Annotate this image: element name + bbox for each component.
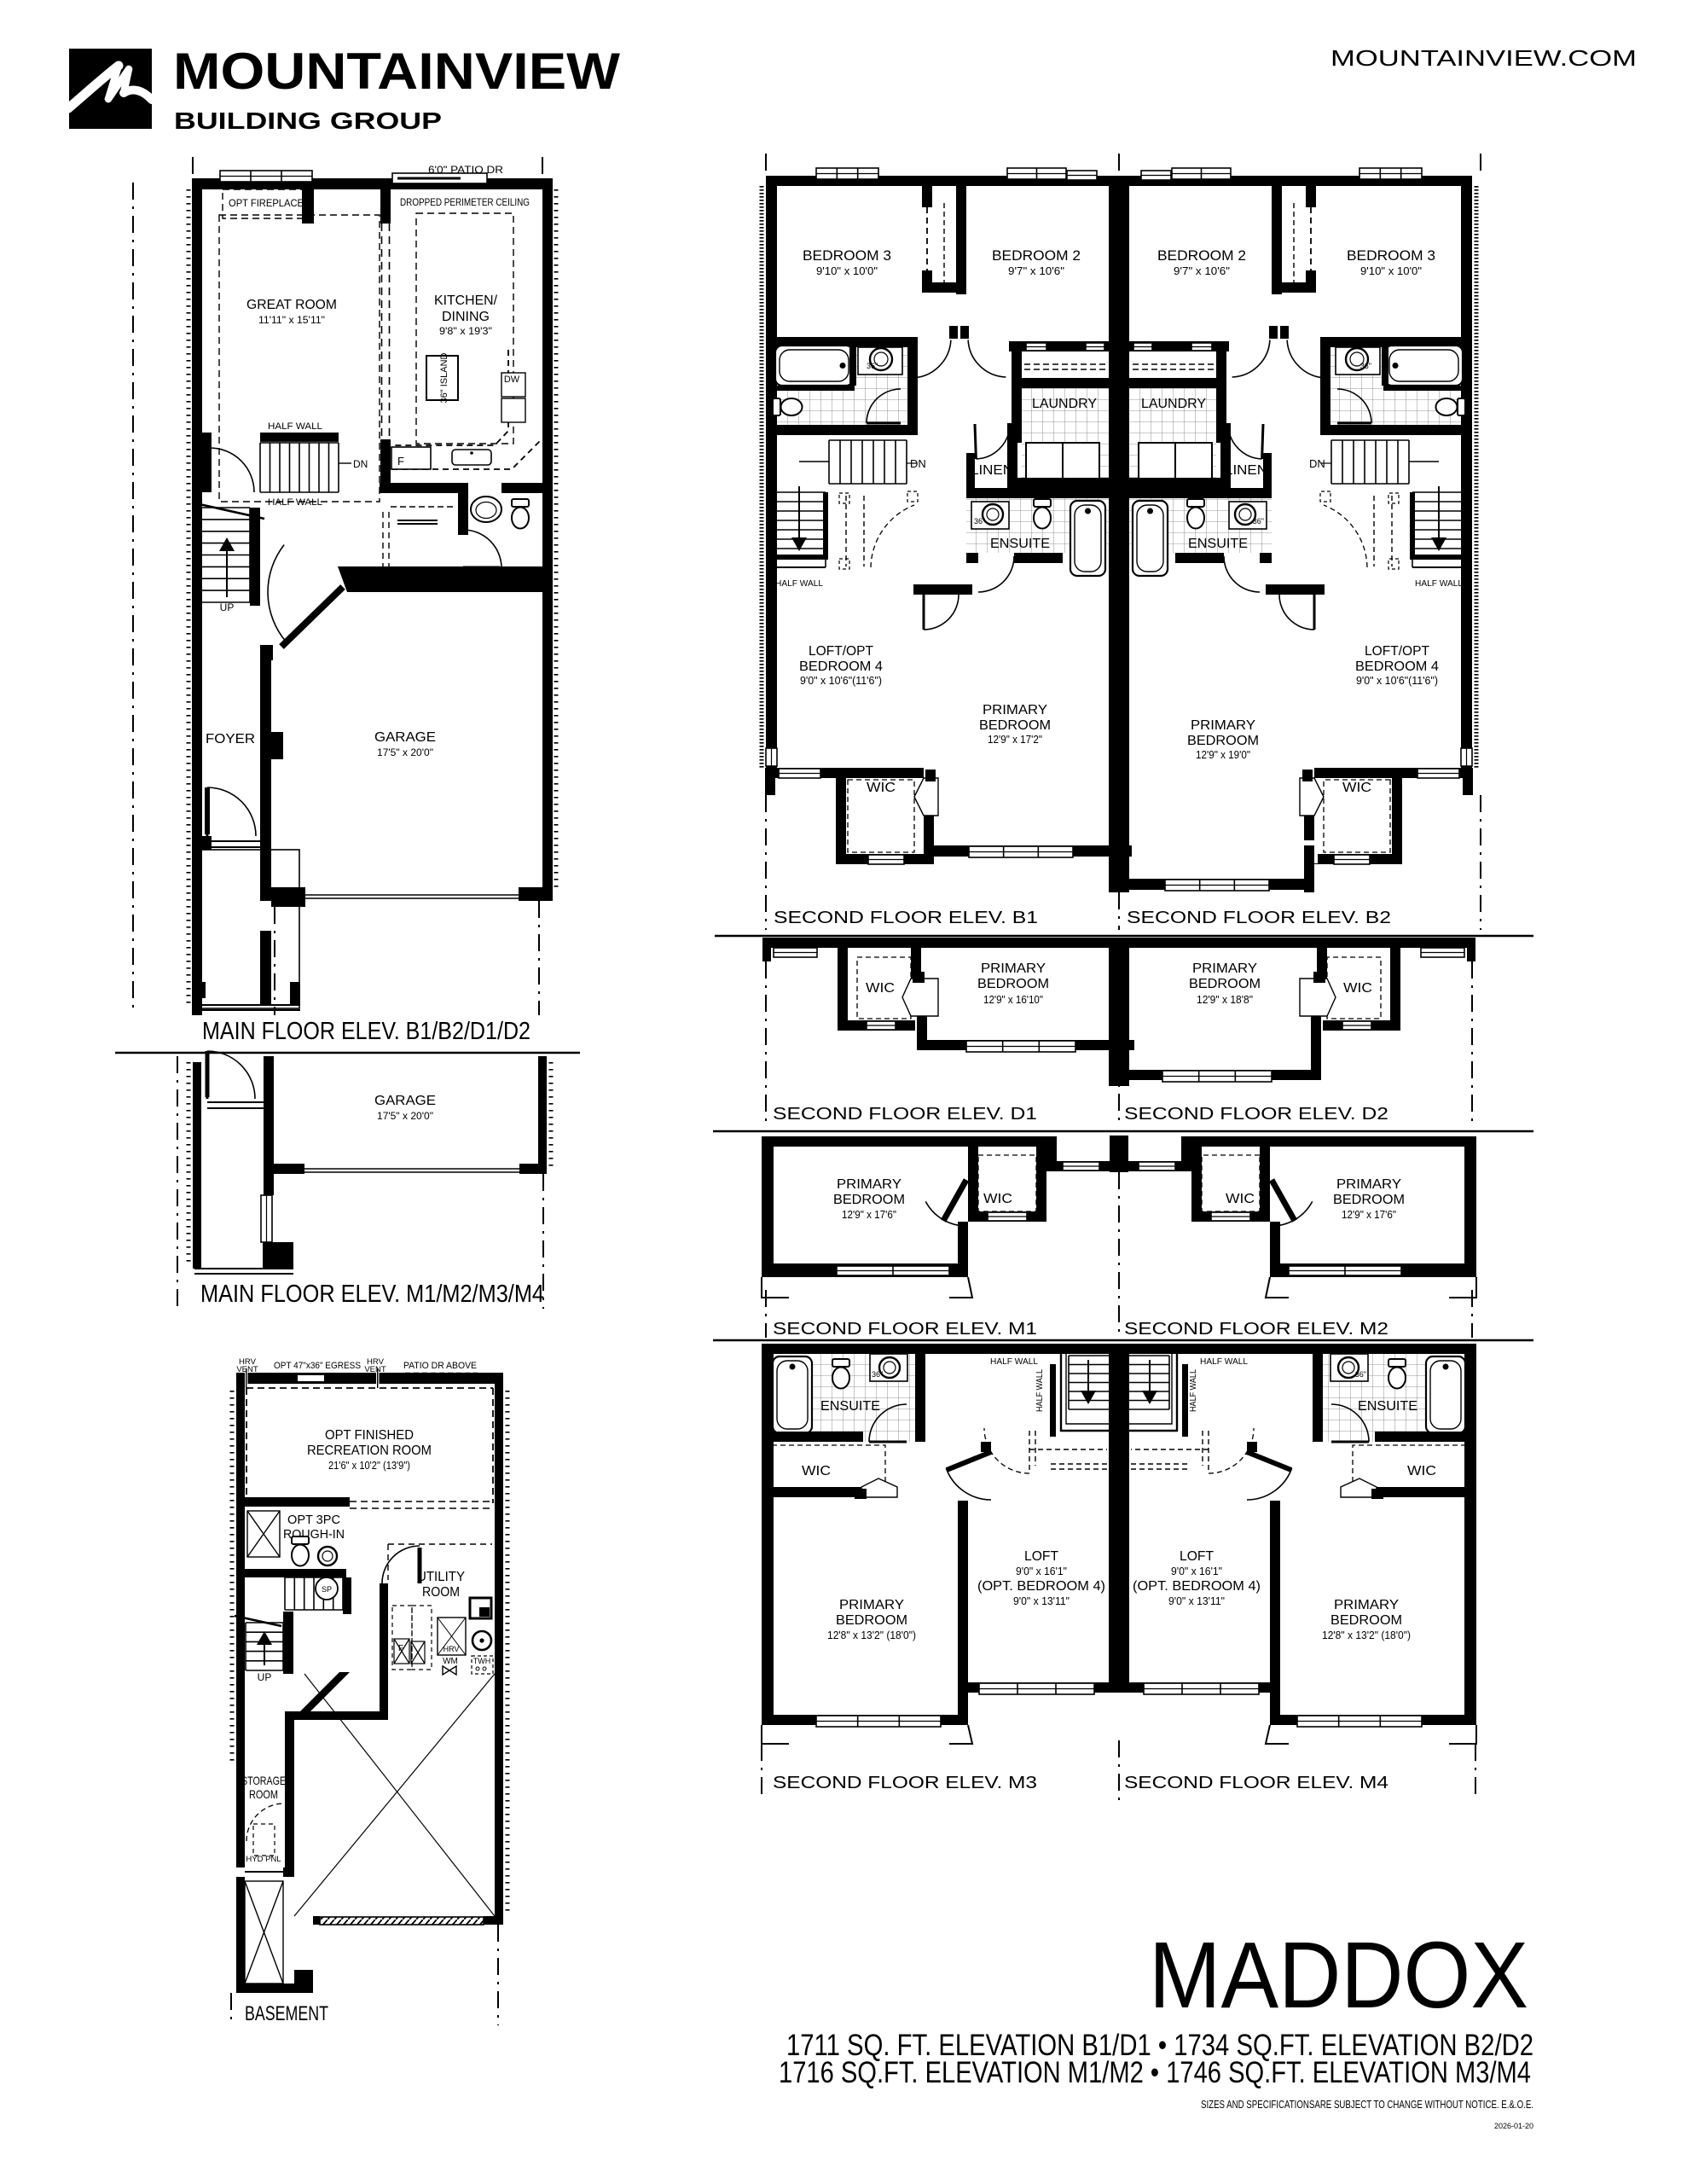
svg-text:SECOND FLOOR ELEV. B2: SECOND FLOOR ELEV. B2 [1127, 909, 1391, 927]
svg-text:HYD PNL: HYD PNL [246, 1855, 281, 1864]
svg-text:9'8" x 19'3": 9'8" x 19'3" [439, 325, 492, 337]
svg-text:LAUNDRY: LAUNDRY [1032, 397, 1097, 411]
svg-text:HALF WALL: HALF WALL [990, 1357, 1038, 1367]
svg-text:UP: UP [220, 601, 235, 613]
svg-text:SECOND FLOOR ELEV. M4: SECOND FLOOR ELEV. M4 [1124, 1774, 1388, 1792]
svg-text:BEDROOM: BEDROOM [1187, 734, 1259, 748]
svg-text:RECREATION ROOM: RECREATION ROOM [307, 1443, 432, 1458]
svg-text:PRIMARY: PRIMARY [1191, 718, 1255, 733]
svg-text:KITCHEN/: KITCHEN/ [434, 293, 498, 308]
svg-text:HALF WALL: HALF WALL [1189, 1369, 1198, 1412]
svg-text:9'10" x 10'0": 9'10" x 10'0" [816, 264, 878, 277]
svg-text:PRIMARY: PRIMARY [1192, 961, 1257, 976]
svg-text:1716 SQ.FT. ELEVATION M1/M2 •: 1716 SQ.FT. ELEVATION M1/M2 • 1746 SQ.FT… [779, 2056, 1531, 2089]
svg-text:LAUNDRY: LAUNDRY [1141, 397, 1206, 411]
svg-text:(OPT. BEDROOM 4): (OPT. BEDROOM 4) [977, 1579, 1105, 1594]
svg-text:36": 36" [867, 362, 878, 370]
svg-text:BEDROOM: BEDROOM [833, 1193, 905, 1207]
svg-text:ROOM: ROOM [249, 1787, 278, 1801]
svg-text:SECOND FLOOR ELEV. M2: SECOND FLOOR ELEV. M2 [1124, 1320, 1388, 1339]
svg-text:ROOM: ROOM [422, 1585, 460, 1600]
svg-text:OPT 47"x36" EGRESS: OPT 47"x36" EGRESS [274, 1361, 361, 1371]
svg-text:ENSUITE: ENSUITE [1188, 537, 1248, 551]
svg-text:9'10" x 10'0": 9'10" x 10'0" [1360, 264, 1422, 277]
svg-text:PRIMARY: PRIMARY [983, 703, 1047, 717]
svg-text:SIZES AND SPECIFICATIONSARE SU: SIZES AND SPECIFICATIONSARE SUBJECT TO C… [1201, 2098, 1533, 2111]
svg-text:9'0" x 10'6"(11'6"): 9'0" x 10'6"(11'6") [1356, 675, 1438, 687]
svg-text:UP: UP [258, 1671, 272, 1683]
svg-text:DINING: DINING [442, 310, 490, 324]
svg-text:DN: DN [1309, 457, 1325, 470]
svg-text:LOFT/OPT: LOFT/OPT [1365, 644, 1429, 659]
svg-text:11'11" x 15'11": 11'11" x 15'11" [258, 314, 325, 326]
svg-text:HALF WALL: HALF WALL [1200, 1357, 1248, 1367]
svg-text:ENSUITE: ENSUITE [820, 1399, 880, 1414]
svg-text:PATIO DR ABOVE: PATIO DR ABOVE [403, 1361, 477, 1371]
svg-text:HALF WALL: HALF WALL [775, 579, 823, 589]
svg-text:36": 36" [872, 1370, 883, 1379]
svg-text:WIC: WIC [1226, 1192, 1255, 1206]
svg-text:F: F [398, 1644, 403, 1653]
svg-text:WIC: WIC [1343, 981, 1372, 996]
svg-text:36" ISLAND: 36" ISLAND [439, 352, 449, 403]
svg-text:ENSUITE: ENSUITE [1358, 1399, 1417, 1414]
svg-text:GREAT ROOM: GREAT ROOM [246, 298, 337, 312]
svg-text:WIC: WIC [1407, 1464, 1436, 1478]
svg-text:BEDROOM 4: BEDROOM 4 [1355, 659, 1439, 674]
svg-text:MADDOX: MADDOX [1149, 1923, 1528, 2028]
svg-text:17'5" x 20'0": 17'5" x 20'0" [377, 1110, 433, 1122]
svg-text:UTILITY: UTILITY [417, 1570, 465, 1584]
svg-text:SECOND FLOOR ELEV. D1: SECOND FLOOR ELEV. D1 [773, 1105, 1037, 1124]
svg-text:36": 36" [1360, 362, 1371, 370]
svg-text:HRV: HRV [443, 1645, 460, 1653]
svg-text:BEDROOM: BEDROOM [977, 977, 1049, 991]
svg-text:SECOND FLOOR ELEV. M3: SECOND FLOOR ELEV. M3 [773, 1774, 1037, 1792]
svg-text:12'9" x 17'6": 12'9" x 17'6" [1342, 1209, 1396, 1221]
svg-text:9'7" x 10'6": 9'7" x 10'6" [1174, 264, 1230, 277]
svg-text:HALF WALL: HALF WALL [1415, 579, 1463, 589]
svg-text:HALF WALL: HALF WALL [268, 421, 322, 432]
svg-text:21'6" x 10'2" (13'9"): 21'6" x 10'2" (13'9") [328, 1459, 410, 1472]
svg-text:12'9" x 17'2": 12'9" x 17'2" [988, 734, 1042, 746]
svg-text:MAIN FLOOR ELEV. B1/B2/D1/D2: MAIN FLOOR ELEV. B1/B2/D1/D2 [202, 1018, 530, 1045]
svg-text:MOUNTAINVIEW.COM: MOUNTAINVIEW.COM [1330, 45, 1637, 71]
svg-text:BEDROOM: BEDROOM [979, 718, 1051, 733]
svg-text:36": 36" [1253, 517, 1264, 526]
svg-text:BEDROOM 3: BEDROOM 3 [803, 247, 891, 264]
svg-text:12'9" x 16'10": 12'9" x 16'10" [983, 994, 1043, 1006]
svg-text:WIC: WIC [983, 1192, 1012, 1206]
svg-text:HALF WALL: HALF WALL [268, 497, 322, 508]
svg-text:12'8" x 13'2" (18'0"): 12'8" x 13'2" (18'0") [827, 1629, 916, 1641]
svg-text:BEDROOM 3: BEDROOM 3 [1347, 247, 1435, 264]
svg-text:TWH: TWH [473, 1657, 491, 1665]
svg-text:BEDROOM 2: BEDROOM 2 [1157, 247, 1246, 264]
svg-text:BEDROOM 2: BEDROOM 2 [992, 247, 1081, 264]
svg-text:DN: DN [910, 457, 926, 470]
svg-text:PRIMARY: PRIMARY [839, 1598, 904, 1612]
svg-text:LOFT/OPT: LOFT/OPT [809, 644, 873, 659]
svg-text:LINEN: LINEN [971, 463, 1013, 478]
svg-text:BEDROOM: BEDROOM [1189, 977, 1261, 991]
svg-text:LOFT: LOFT [1024, 1549, 1058, 1564]
svg-text:BEDROOM: BEDROOM [1330, 1613, 1402, 1628]
svg-text:SECOND FLOOR ELEV. D2: SECOND FLOOR ELEV. D2 [1124, 1105, 1388, 1124]
svg-text:PRIMARY: PRIMARY [1336, 1177, 1401, 1192]
svg-text:SECOND FLOOR ELEV. B1: SECOND FLOOR ELEV. B1 [774, 909, 1038, 927]
svg-text:MAIN FLOOR ELEV. M1/M2/M3/M4: MAIN FLOOR ELEV. M1/M2/M3/M4 [200, 1281, 544, 1308]
svg-text:OPT FINISHED: OPT FINISHED [325, 1428, 414, 1443]
svg-text:BEDROOM: BEDROOM [836, 1613, 907, 1628]
svg-text:12'9" x 18'8": 12'9" x 18'8" [1197, 994, 1253, 1006]
svg-text:9'0" x 10'6"(11'6"): 9'0" x 10'6"(11'6") [800, 675, 882, 687]
svg-text:F: F [397, 455, 404, 468]
svg-text:WIC: WIC [867, 781, 896, 795]
svg-text:BEDROOM 4: BEDROOM 4 [799, 659, 883, 674]
svg-text:GARAGE: GARAGE [374, 1094, 436, 1108]
svg-text:9'0" x 16'1": 9'0" x 16'1" [1016, 1565, 1067, 1577]
svg-text:SECOND FLOOR ELEV. M1: SECOND FLOOR ELEV. M1 [773, 1320, 1037, 1339]
svg-text:LOFT: LOFT [1180, 1549, 1214, 1564]
svg-text:ENSUITE: ENSUITE [990, 537, 1050, 551]
svg-text:STORAGE: STORAGE [241, 1774, 286, 1787]
svg-text:DROPPED PERIMETER CEILING: DROPPED PERIMETER CEILING [400, 196, 530, 208]
svg-text:9'0" x 16'1": 9'0" x 16'1" [1171, 1565, 1222, 1577]
svg-text:9'0" x 13'11": 9'0" x 13'11" [1013, 1595, 1070, 1607]
svg-text:BUILDING GROUP: BUILDING GROUP [174, 107, 442, 134]
svg-text:OPT 3PC: OPT 3PC [287, 1513, 340, 1527]
svg-text:BASEMENT: BASEMENT [245, 2002, 328, 2025]
svg-text:HALF WALL: HALF WALL [1035, 1369, 1045, 1412]
svg-text:LINEN: LINEN [1225, 463, 1267, 478]
svg-text:MOUNTAINVIEW: MOUNTAINVIEW [173, 43, 620, 100]
svg-text:FOYER: FOYER [206, 732, 255, 746]
svg-text:PRIMARY: PRIMARY [1334, 1598, 1399, 1612]
svg-text:WIC: WIC [866, 981, 895, 996]
svg-text:12'8" x 13'2" (18'0"): 12'8" x 13'2" (18'0") [1322, 1629, 1411, 1641]
svg-text:WM: WM [443, 1657, 458, 1666]
svg-text:BEDROOM: BEDROOM [1333, 1193, 1405, 1207]
svg-text:12'9" x 19'0": 12'9" x 19'0" [1196, 749, 1250, 761]
svg-text:OPT FIREPLACE: OPT FIREPLACE [229, 197, 304, 209]
svg-text:9'0" x 13'11": 9'0" x 13'11" [1168, 1595, 1225, 1607]
svg-text:PRIMARY: PRIMARY [981, 961, 1046, 976]
svg-text:9'7" x 10'6": 9'7" x 10'6" [1008, 264, 1064, 277]
svg-text:SP: SP [322, 1585, 332, 1594]
svg-text:GARAGE: GARAGE [374, 730, 436, 745]
svg-text:12'9" x 17'6": 12'9" x 17'6" [842, 1209, 896, 1221]
svg-text:PRIMARY: PRIMARY [837, 1177, 901, 1192]
svg-text:2026-01-20: 2026-01-20 [1494, 2122, 1533, 2130]
svg-text:(OPT. BEDROOM 4): (OPT. BEDROOM 4) [1133, 1579, 1261, 1594]
svg-text:DN: DN [353, 458, 368, 470]
svg-text:36": 36" [1355, 1370, 1366, 1379]
svg-text:36": 36" [974, 517, 985, 526]
svg-text:WIC: WIC [802, 1464, 831, 1478]
svg-text:DW: DW [504, 375, 520, 385]
svg-text:WIC: WIC [1342, 781, 1371, 795]
svg-text:17'5" x 20'0": 17'5" x 20'0" [377, 746, 433, 758]
